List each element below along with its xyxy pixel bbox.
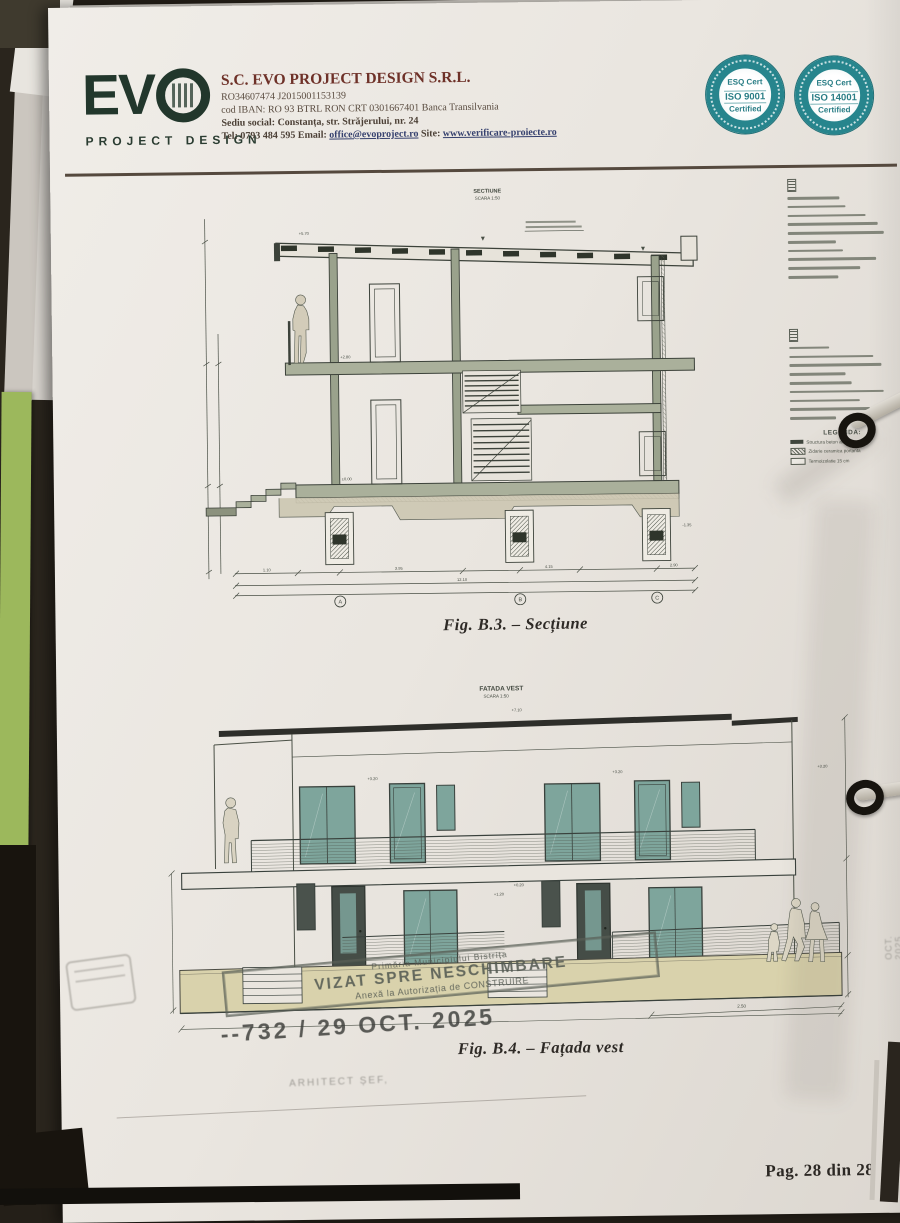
legend-swatch-solid (790, 440, 803, 445)
interior-door-frames (369, 284, 401, 484)
level-mark: +7.10 (512, 707, 523, 712)
legend-swatch-hatch (790, 448, 805, 455)
section-title: SECTIUNE (473, 188, 501, 194)
email-value: office@evoproject.ro (329, 128, 418, 140)
level-mark: +1.20 (494, 891, 505, 896)
grid-label: B (518, 597, 522, 603)
roof-right-parapet (681, 236, 697, 260)
layer-item (790, 381, 852, 384)
layer-item (789, 355, 873, 359)
signature-line (117, 1095, 587, 1118)
chief-architect-stamp: ARHITECT ȘEF, (289, 1075, 389, 1090)
layer-item (790, 416, 836, 419)
layer-item (789, 363, 881, 367)
staircase (462, 370, 531, 481)
illegible-note-line (526, 225, 582, 228)
layer-item (790, 399, 860, 402)
grid-label: A (338, 599, 342, 605)
site-label: Site: (421, 128, 441, 139)
document-page: EV PROJECT DESIGN S.C. EVO PROJECT DESIG… (48, 0, 900, 1223)
layer-item (788, 214, 866, 218)
level-mark: +2.80 (340, 354, 351, 359)
dimension-text: 3.95 (395, 566, 404, 571)
facade-caption: Fig. B.4. – Fațada vest (391, 1036, 691, 1060)
tel-value: 0793 484 595 (240, 130, 295, 142)
logo-text: EV (82, 67, 155, 125)
photo-of-document: { "photo": { "paper": "#ece8e2", "backgr… (0, 0, 900, 1200)
evo-logo: EV (82, 66, 211, 125)
section-title-block: SECTIUNE SCARA 1:50 (473, 187, 583, 231)
layer-item (788, 231, 884, 235)
layer-item (787, 205, 845, 208)
layer-item (788, 275, 838, 278)
layer-item (788, 257, 876, 261)
facade-title: FATADA VEST (479, 685, 523, 693)
level-mark: +3.20 (367, 776, 378, 781)
header-divider (65, 164, 897, 177)
ground-small-window (297, 884, 316, 930)
grid-label: C (655, 596, 659, 602)
roof-left-cap (274, 243, 280, 261)
upper-small-window (682, 782, 701, 827)
upper-small-window (437, 785, 456, 830)
level-mark: +3.20 (612, 769, 623, 774)
stair-landing-slab (518, 404, 661, 415)
layer-item (789, 346, 829, 349)
dimension-text: 2.50 (737, 1004, 746, 1009)
layer-item (788, 249, 843, 252)
illegible-note-line (526, 221, 576, 224)
left-dimension-lines (202, 219, 224, 579)
badge-ring-dots (710, 59, 781, 130)
layer-item (787, 196, 839, 199)
tel-label: Tel: (222, 131, 238, 142)
dimension-text: 4.15 (545, 564, 554, 569)
dimension-total: 12.10 (457, 577, 468, 582)
company-info-block: S.C. EVO PROJECT DESIGN S.R.L. RO3460747… (221, 67, 652, 142)
logo-o-ring (156, 68, 211, 123)
layer-group-icon (787, 179, 796, 192)
layer-item (790, 407, 870, 411)
balcony-post (288, 321, 291, 365)
section-caption: Fig. B.3. – Secțiune (365, 613, 665, 637)
side-date-stamp: OCT. 2025 (883, 922, 900, 960)
company-name: S.C. EVO PROJECT DESIGN S.R.L. (221, 67, 651, 90)
left-return-wall (214, 745, 216, 869)
layer-item (788, 222, 878, 226)
ground-small-window (542, 881, 561, 927)
dimension-text: 2.90 (670, 562, 679, 567)
level-mark: -1.35 (682, 522, 692, 527)
site-value: www.verificare-proiecte.ro (443, 127, 557, 139)
level-mark: +0.20 (514, 882, 525, 887)
facade-scale: SCARA 1:50 (483, 693, 509, 698)
person-figure (288, 295, 310, 365)
page-number: Pag. 28 din 28 (765, 1160, 874, 1181)
level-mark: +5.70 (299, 231, 310, 236)
building-icon (172, 83, 194, 107)
layer-item (790, 372, 846, 375)
person-figure (223, 798, 240, 863)
badge-ring-dots (799, 60, 870, 131)
section-drawing: SECTIUNE SCARA 1:50 (180, 177, 795, 609)
upper-door (390, 783, 426, 862)
layer-item (788, 266, 860, 269)
facade-left-edge (292, 734, 295, 994)
layer-item (790, 390, 884, 394)
green-sheet (0, 392, 32, 848)
faint-stamp-fragment (65, 953, 137, 1011)
layer-item (788, 240, 836, 243)
layer-group-icon (789, 329, 798, 342)
dimension-text: 1.10 (263, 567, 272, 572)
email-label: Email: (298, 130, 327, 141)
iso-9001-badge: ESQ Cert ISO 9001 Certified (706, 55, 785, 134)
section-scale: SCARA 1:50 (475, 195, 501, 200)
level-mark: ±0.00 (342, 476, 353, 481)
iso-14001-badge: ESQ Cert ISO 14001 Certified (795, 56, 874, 135)
